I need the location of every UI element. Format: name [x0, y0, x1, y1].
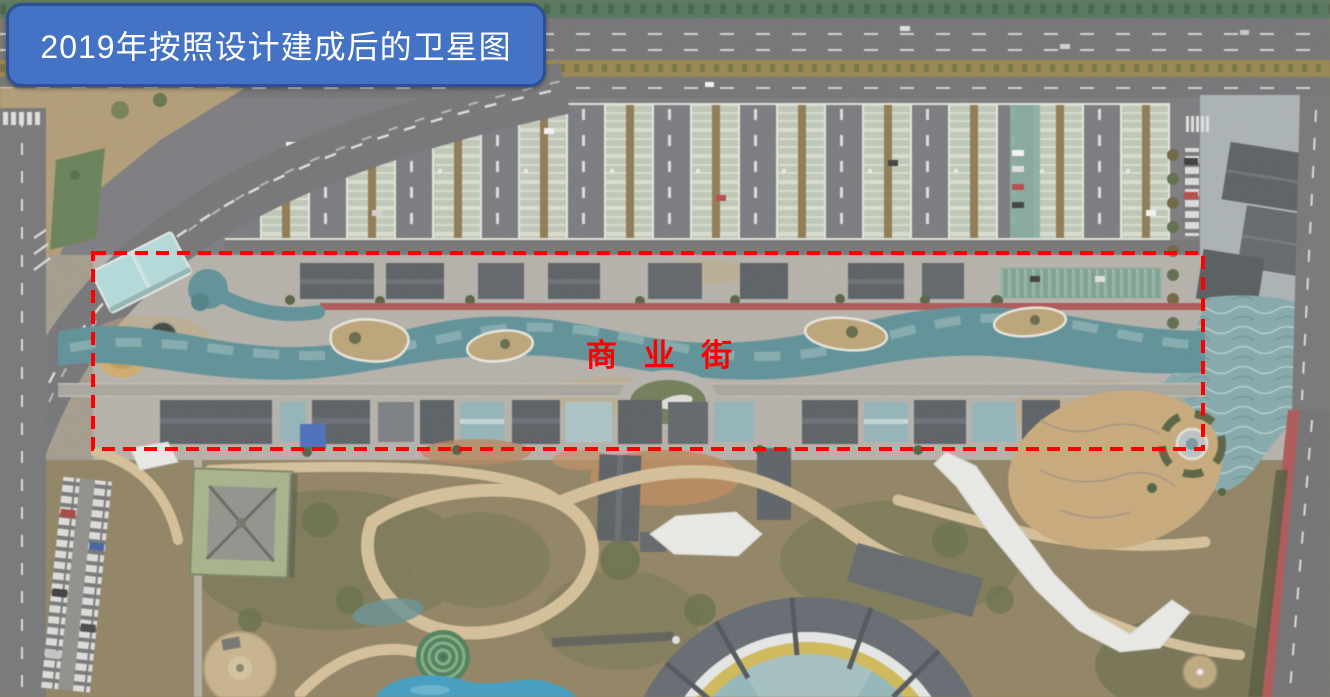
title-text: 2019年按照设计建成后的卫星图 [40, 22, 511, 68]
satellite-map-slide: 2019年按照设计建成后的卫星图 商 业 街 [0, 0, 1330, 697]
street-label: 商 业 街 [586, 330, 741, 375]
title-box: 2019年按照设计建成后的卫星图 [6, 3, 546, 87]
